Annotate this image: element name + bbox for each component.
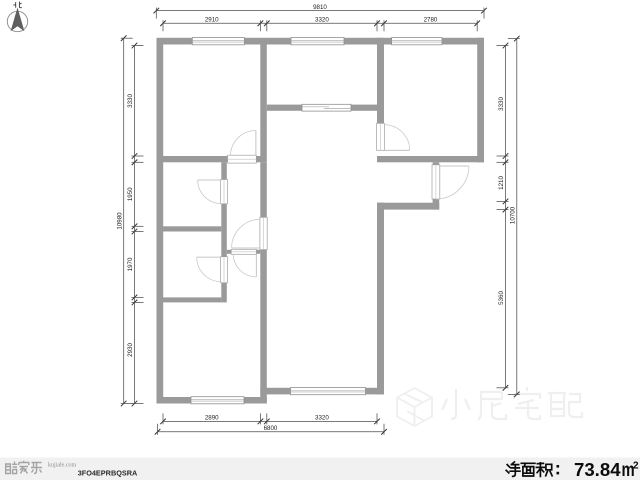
svg-text:2930: 2930 xyxy=(127,343,134,357)
svg-text:10700: 10700 xyxy=(509,206,516,224)
svg-text:2910: 2910 xyxy=(205,17,219,24)
svg-text:6800: 6800 xyxy=(264,425,278,432)
svg-text:10980: 10980 xyxy=(116,212,123,230)
svg-text:3330: 3330 xyxy=(127,94,134,108)
svg-text:5360: 5360 xyxy=(498,291,505,305)
svg-text:73.84: 73.84 xyxy=(574,459,621,480)
svg-text:3FO4EPRBQSRA: 3FO4EPRBQSRA xyxy=(78,469,138,478)
svg-text:3320: 3320 xyxy=(315,415,329,422)
svg-text:kujiale.com: kujiale.com xyxy=(48,463,76,469)
svg-text:1950: 1950 xyxy=(127,187,134,201)
svg-text:9810: 9810 xyxy=(313,4,327,11)
svg-text:1970: 1970 xyxy=(127,257,134,271)
svg-text:2780: 2780 xyxy=(424,17,438,24)
svg-text:3330: 3330 xyxy=(498,97,505,111)
svg-text:2: 2 xyxy=(633,460,639,471)
svg-text:1210: 1210 xyxy=(498,176,505,190)
svg-text:2890: 2890 xyxy=(205,415,219,422)
svg-text:3320: 3320 xyxy=(315,17,329,24)
